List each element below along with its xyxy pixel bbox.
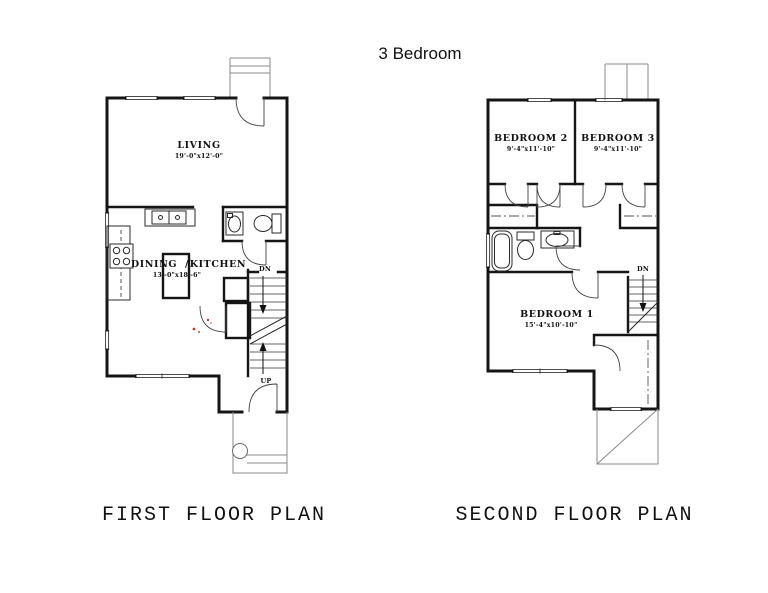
vanity-sink (541, 231, 574, 248)
living-room-label: LIVING (177, 140, 220, 151)
front-porch (233, 412, 288, 473)
bedroom2-dims: 9'-4"x11'-10" (507, 146, 555, 153)
bedroom1-label: BEDROOM 1 (520, 309, 594, 320)
stair-down-label-second: DN (637, 265, 649, 273)
second-floor-caption: SECOND FLOOR PLAN (452, 504, 697, 527)
dining-kitchen-dims: 13'-0"x18'-6" (153, 272, 201, 279)
toilet-second-floor (517, 232, 534, 260)
toilet (254, 214, 281, 233)
bedroom1-dims: 15'-4"x10'-10" (525, 322, 578, 329)
bedroom3-label: BEDROOM 3 (581, 133, 655, 144)
dining-label: DINING (131, 259, 177, 270)
bedroom3-dims: 9'-4"x11'-10" (594, 146, 642, 153)
entry-stoop-steps (230, 58, 270, 98)
bedroom2-label: BEDROOM 2 (494, 133, 568, 144)
first-floor-caption: FIRST FLOOR PLAN (102, 504, 322, 527)
first-floor-plan: LIVING 19'-0"x12'-0" DINING / KITCHEN 13… (106, 58, 287, 473)
staircase-first-floor (250, 276, 287, 374)
living-room-dims: 19'-0"x12'-0" (175, 153, 223, 160)
red-marks (193, 319, 212, 333)
bathtub (492, 231, 512, 271)
stair-down-label-first: DN (259, 265, 271, 273)
second-floor-door-swings (505, 184, 645, 371)
kitchen-label: KITCHEN (190, 259, 246, 270)
stair-up-label-first: UP (261, 377, 272, 385)
chimney (605, 64, 648, 100)
kitchen-sink (152, 211, 186, 224)
powder-room-sink (226, 212, 243, 235)
second-floor-plan: BEDROOM 2 9'-4"x11'-10" BEDROOM 3 9'-4"x… (487, 64, 658, 464)
dining-kitchen-divider: / (185, 259, 189, 270)
first-floor-windows (106, 97, 216, 379)
staircase-second-floor (628, 275, 658, 332)
roof-outline (597, 409, 658, 464)
stove (110, 244, 133, 268)
floorplan-page: 3 Bedroom (0, 0, 768, 593)
